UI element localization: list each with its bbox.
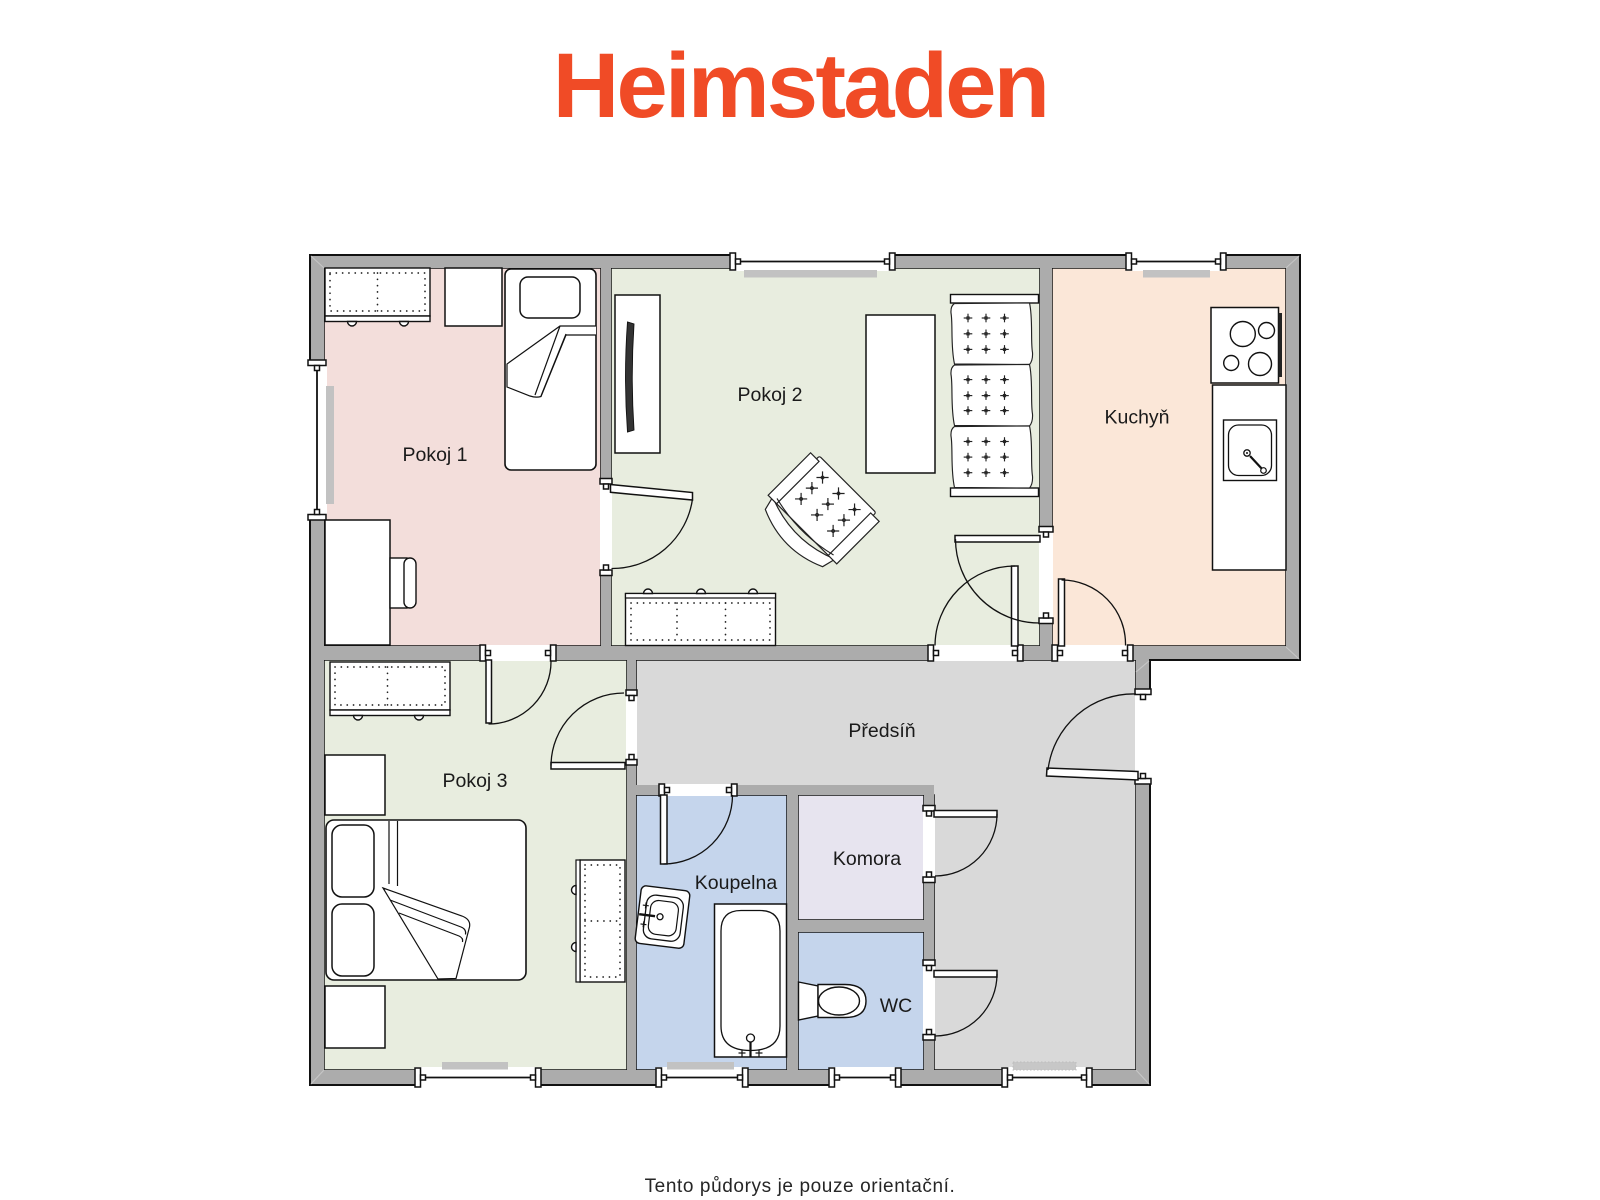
svg-text:Kuchyň: Kuchyň [1104,407,1169,429]
svg-text:Koupelna: Koupelna [695,872,778,894]
svg-text:Komora: Komora [833,848,901,870]
svg-text:Pokoj 1: Pokoj 1 [402,444,467,466]
svg-text:Předsíň: Předsíň [848,720,915,742]
svg-text:Pokoj 3: Pokoj 3 [442,770,507,792]
svg-text:WC: WC [880,995,913,1017]
svg-text:Pokoj 2: Pokoj 2 [737,384,802,406]
